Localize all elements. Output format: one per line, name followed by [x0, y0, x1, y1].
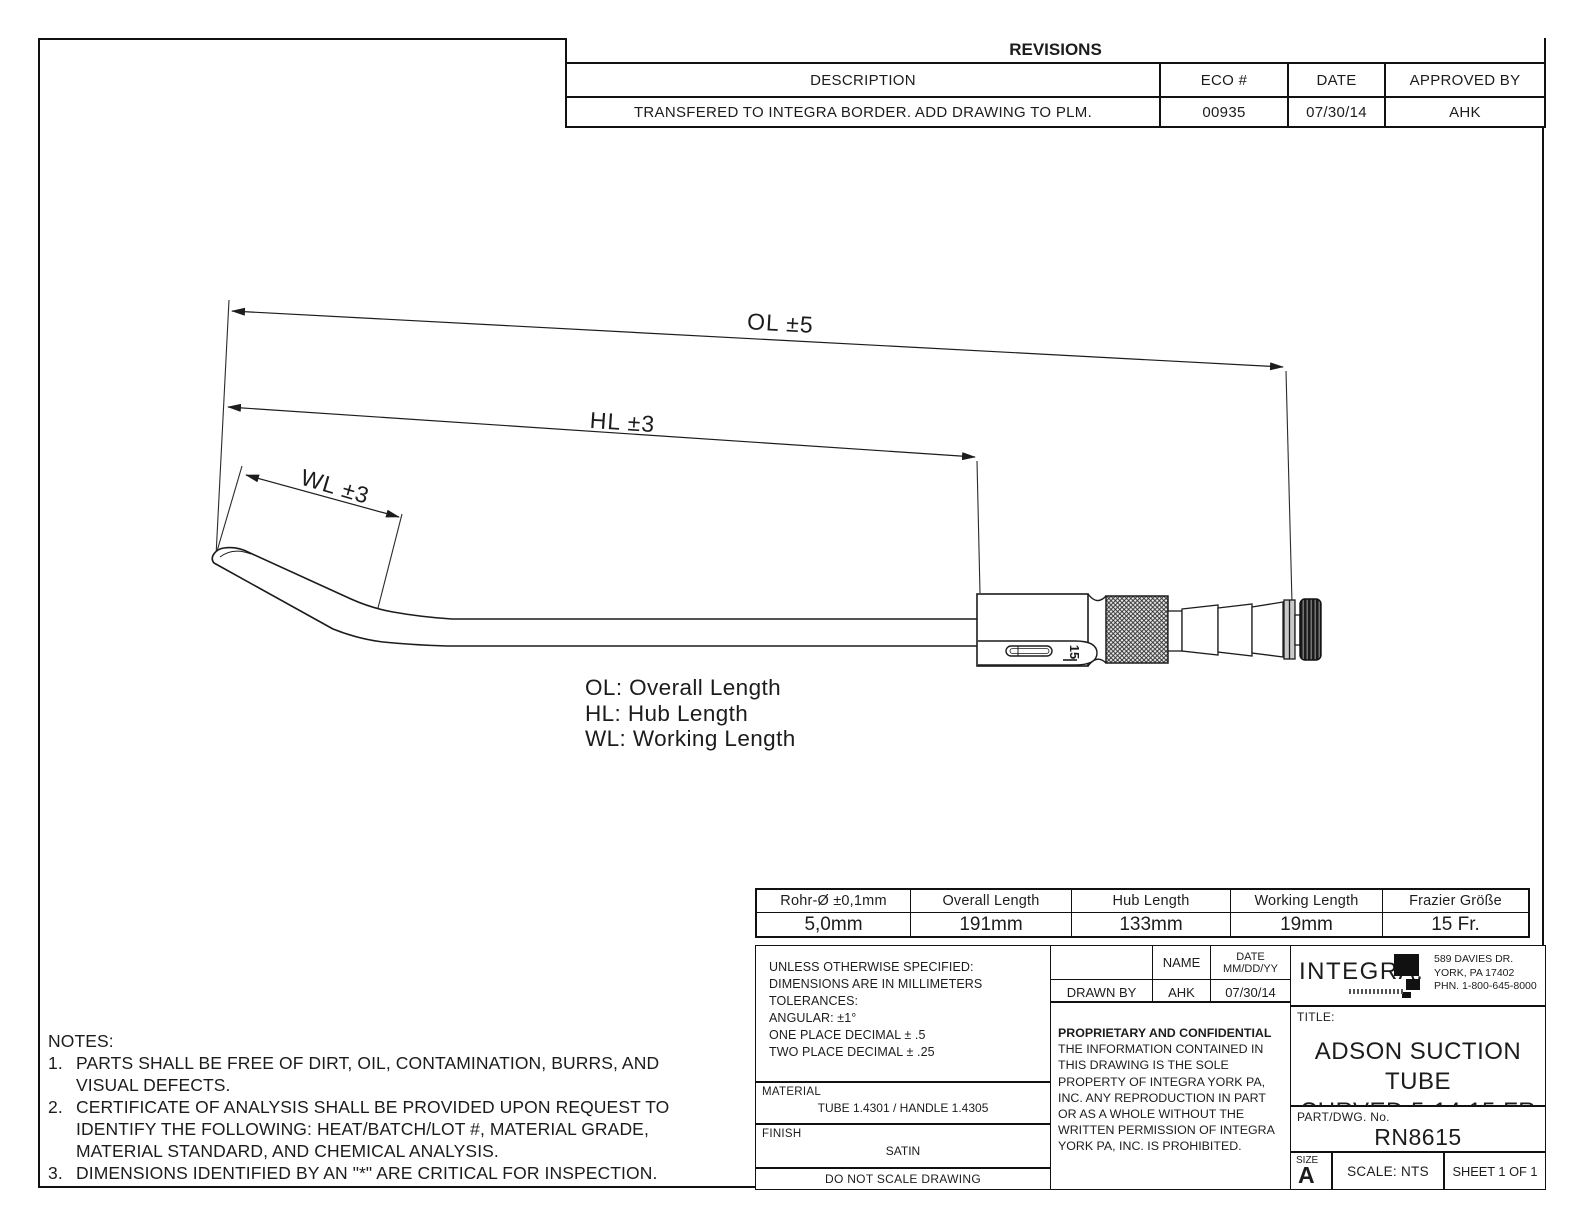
tolerance-line: TOLERANCES: [769, 993, 1050, 1010]
name-header: NAME [1152, 946, 1210, 979]
col-overall-length: Overall Length [910, 890, 1071, 912]
revisions-title: REVISIONS [567, 38, 1544, 64]
notes-label: NOTES: [48, 1030, 669, 1052]
integra-logo-tagline [1349, 989, 1405, 994]
company-address: 589 DAVIES DR. YORK, PA 17402 PHN. 1-800… [1434, 953, 1537, 994]
notes-block: NOTES: 1. PARTS SHALL BE FREE OF DIRT, O… [48, 1030, 669, 1184]
signature-header-row: NAME DATE MM/DD/YY [1051, 946, 1290, 980]
value-frazier-size: 15 Fr. [1382, 913, 1528, 936]
note-item-3: 3. DIMENSIONS IDENTIFIED BY AN "*" ARE C… [48, 1162, 669, 1184]
sheet-box: SHEET 1 OF 1 [1444, 1152, 1546, 1190]
value-working-length: 19mm [1230, 913, 1382, 936]
title-label: TITLE: [1297, 1010, 1335, 1024]
part-label: PART/DWG. No. [1297, 1110, 1390, 1124]
revisions-col-approved: APPROVED BY [1384, 64, 1544, 96]
revision-approved-by: AHK [1384, 98, 1544, 126]
dimension-table-header-row: Rohr-Ø ±0,1mm Overall Length Hub Length … [757, 890, 1528, 913]
tolerance-line: DIMENSIONS ARE IN MILLIMETERS [769, 976, 1050, 993]
dimension-table-value-row: 5,0mm 191mm 133mm 19mm 15 Fr. [757, 913, 1528, 936]
integra-logo-mark [1406, 979, 1420, 990]
revisions-col-date: DATE [1287, 64, 1384, 96]
note-item-2: 2. CERTIFICATE OF ANALYSIS SHALL BE PROV… [48, 1096, 669, 1162]
proprietary-title: PROPRIETARY AND CONFIDENTIAL [1058, 1026, 1271, 1040]
dimension-legend: OL: Overall Length HL: Hub Length WL: Wo… [585, 675, 796, 752]
col-working-length: Working Length [1230, 890, 1382, 912]
drawing-sheet: REVISIONS DESCRIPTION ECO # DATE APPROVE… [0, 0, 1584, 1224]
legend-hub-length: HL: Hub Length [585, 701, 796, 727]
col-rohr-diameter: Rohr-Ø ±0,1mm [757, 890, 910, 912]
proprietary-notice: PROPRIETARY AND CONFIDENTIAL THE INFORMA… [1050, 1002, 1291, 1190]
material-block: MATERIAL TUBE 1.4301 / HANDLE 1.4305 [755, 1082, 1051, 1124]
revision-eco-number: 00935 [1159, 98, 1287, 126]
value-rohr-diameter: 5,0mm [757, 913, 910, 936]
revisions-col-eco: ECO # [1159, 64, 1287, 96]
value-hub-length: 133mm [1071, 913, 1230, 936]
scale-box: SCALE: NTS [1332, 1152, 1444, 1190]
legend-working-length: WL: Working Length [585, 726, 796, 752]
drawn-by-date: 07/30/14 [1210, 980, 1290, 1004]
revision-description: TRANSFERED TO INTEGRA BORDER. ADD DRAWIN… [567, 98, 1159, 126]
drawn-by-label: DRAWN BY [1051, 980, 1152, 1004]
title-box: TITLE: ADSON SUCTION TUBE CURVED 5-14 15… [1290, 1006, 1546, 1106]
drawn-by-name: AHK [1152, 980, 1210, 1004]
size-box: SIZE A [1290, 1152, 1332, 1190]
do-not-scale-note: DO NOT SCALE DRAWING [755, 1168, 1051, 1190]
integra-logo-mark [1394, 954, 1419, 976]
tolerance-line: ONE PLACE DECIMAL ± .5 [769, 1027, 1050, 1044]
revision-date: 07/30/14 [1287, 98, 1384, 126]
tolerance-line: TWO PLACE DECIMAL ± .25 [769, 1044, 1050, 1061]
drawn-by-row: DRAWN BY AHK 07/30/14 [1051, 980, 1290, 1004]
tolerance-line: ANGULAR: ±1° [769, 1010, 1050, 1027]
tolerance-block: UNLESS OTHERWISE SPECIFIED: DIMENSIONS A… [755, 945, 1051, 1082]
size-value: A [1298, 1162, 1315, 1189]
revisions-col-description: DESCRIPTION [567, 64, 1159, 96]
revisions-data-row: TRANSFERED TO INTEGRA BORDER. ADD DRAWIN… [567, 98, 1544, 126]
proprietary-body: THE INFORMATION CONTAINED IN THIS DRAWIN… [1058, 1042, 1274, 1153]
company-block: INTEGRA. 589 DAVIES DR. YORK, PA 17402 P… [1290, 945, 1546, 1006]
signature-table: NAME DATE MM/DD/YY DRAWN BY AHK 07/30/14 [1050, 945, 1291, 1002]
revisions-header-row: DESCRIPTION ECO # DATE APPROVED BY [567, 64, 1544, 98]
col-hub-length: Hub Length [1071, 890, 1230, 912]
col-frazier-size: Frazier Größe [1382, 890, 1528, 912]
material-label: MATERIAL [762, 1086, 821, 1098]
legend-overall-length: OL: Overall Length [585, 675, 796, 701]
note-item-1: 1. PARTS SHALL BE FREE OF DIRT, OIL, CON… [48, 1052, 669, 1096]
part-number-box: PART/DWG. No. RN8615 [1290, 1106, 1546, 1152]
dimension-table: Rohr-Ø ±0,1mm Overall Length Hub Length … [755, 888, 1530, 938]
finish-block: FINISH SATIN [755, 1124, 1051, 1168]
finish-label: FINISH [762, 1128, 802, 1140]
tolerance-line: UNLESS OTHERWISE SPECIFIED: [769, 959, 1050, 976]
value-overall-length: 191mm [910, 913, 1071, 936]
signature-blank-cell [1051, 946, 1152, 979]
date-header: DATE MM/DD/YY [1210, 946, 1290, 979]
revisions-table: REVISIONS DESCRIPTION ECO # DATE APPROVE… [565, 38, 1546, 128]
drawing-title-line1: ADSON SUCTION TUBE [1291, 1037, 1545, 1097]
